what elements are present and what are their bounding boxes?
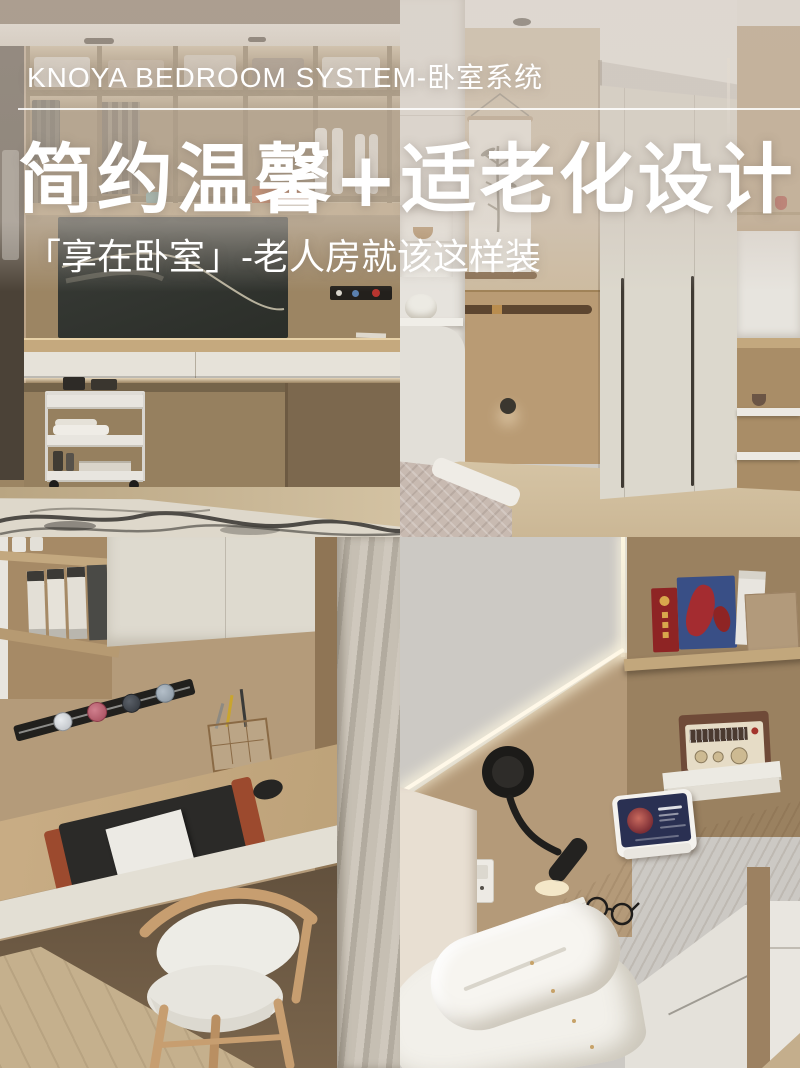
poster-title: 简约温馨+适老化设计 <box>18 118 796 228</box>
pillow-button <box>530 961 534 965</box>
patterned-bowl <box>405 294 437 320</box>
divider-rule <box>18 108 800 110</box>
ceiling-band <box>0 24 400 46</box>
ceiling-light-slot <box>84 38 114 44</box>
shelf-board-white <box>737 408 800 416</box>
grab-bar <box>460 305 592 314</box>
hanging-cord <box>471 94 529 116</box>
chair <box>120 877 330 1068</box>
cart-towels <box>53 425 109 435</box>
media-device-strip <box>330 286 392 300</box>
cart-bottle <box>66 453 74 471</box>
cart-tray <box>47 395 143 409</box>
smart-display-screen <box>617 793 692 848</box>
hanging-garment <box>2 150 19 260</box>
door-handle <box>621 278 624 488</box>
radio-knob <box>730 747 748 765</box>
right-shelf-column <box>737 0 800 537</box>
photo-bedside <box>400 537 800 1068</box>
binder <box>67 567 88 640</box>
cart-bottle <box>53 451 63 471</box>
radio-knob <box>712 751 724 763</box>
poster: KNOYA BEDROOM SYSTEM-卧室系统 简约温馨+适老化设计 「享在… <box>0 0 800 1068</box>
cart-tray <box>47 435 143 447</box>
curtain <box>337 537 400 1068</box>
ceiling-light-slot <box>248 37 266 42</box>
pillow-button <box>572 1019 576 1023</box>
magnet-red <box>85 700 109 724</box>
album-art <box>626 806 655 835</box>
poster-subtitle: 「享在卧室」-老人房就该这样装 <box>25 228 541 280</box>
recessed-light <box>513 18 531 26</box>
radio-dial-window <box>689 727 748 743</box>
kraft-box <box>745 592 800 653</box>
photo-desk-nook <box>0 537 400 1068</box>
magnet-blue <box>153 682 176 705</box>
magnet-dark <box>120 692 143 715</box>
radio-knob <box>694 750 708 764</box>
shelf-board-white <box>737 452 800 460</box>
rolling-cart <box>45 385 145 489</box>
side-wood-strip <box>747 867 770 1068</box>
shelf-cup <box>30 537 43 551</box>
open-shelf <box>0 537 112 699</box>
dark-book <box>87 565 110 641</box>
drawer-row <box>24 352 400 378</box>
night-light-button <box>500 398 516 414</box>
cart-item-dark <box>91 379 117 390</box>
smart-display <box>611 788 702 868</box>
cabinet-top-trim <box>0 0 400 26</box>
wainscot <box>458 290 600 464</box>
tea-box-red <box>651 576 738 655</box>
cart-tray <box>47 471 143 482</box>
pillow-button <box>551 989 555 993</box>
pillow-button <box>590 1045 594 1049</box>
door-handle <box>691 276 694 486</box>
column-counter <box>400 318 463 326</box>
binder <box>47 569 66 640</box>
wardrobe-interior <box>0 46 26 480</box>
brand-line: KNOYA BEDROOM SYSTEM-卧室系统 <box>27 56 543 96</box>
led-strip-vertical <box>621 537 625 657</box>
cart-item-dark <box>63 377 85 390</box>
shelf-cup <box>12 537 26 552</box>
upper-cabinet <box>107 537 335 649</box>
magnet-gray <box>51 710 74 733</box>
binder <box>27 571 46 640</box>
